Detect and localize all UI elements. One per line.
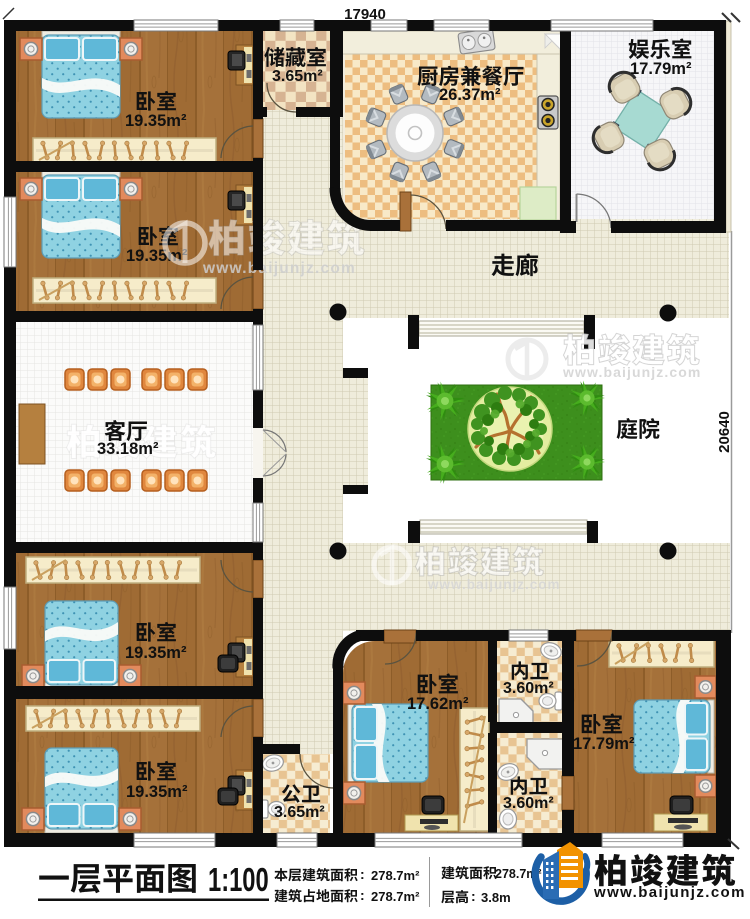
- svg-text:www.baijunjz.com: www.baijunjz.com: [562, 364, 701, 380]
- svg-text:19.35m²: 19.35m²: [125, 112, 187, 130]
- svg-text:17.79m²: 17.79m²: [573, 735, 635, 753]
- svg-text::: :: [471, 888, 476, 904]
- svg-text::: :: [360, 887, 365, 903]
- svg-text:19.35m²: 19.35m²: [126, 783, 188, 801]
- svg-text:3.65m²: 3.65m²: [272, 68, 323, 85]
- svg-text:3.8m: 3.8m: [481, 890, 511, 905]
- svg-text:3.65m²: 3.65m²: [274, 804, 325, 821]
- svg-text:26.37m²: 26.37m²: [439, 86, 501, 104]
- svg-text:1:100: 1:100: [208, 862, 269, 899]
- svg-text:www.baijunjz.com: www.baijunjz.com: [427, 577, 561, 592]
- svg-text:17.79m²: 17.79m²: [630, 60, 692, 78]
- svg-text:3.60m²: 3.60m²: [503, 680, 554, 697]
- svg-text::: :: [360, 866, 365, 882]
- svg-text:www.baijunjz.com: www.baijunjz.com: [593, 884, 746, 901]
- svg-text:19.35m²: 19.35m²: [125, 644, 187, 662]
- svg-text:278.7m²: 278.7m²: [371, 889, 420, 904]
- svg-text:www.baijunjz.com: www.baijunjz.com: [202, 260, 356, 277]
- svg-text:3.60m²: 3.60m²: [503, 795, 554, 812]
- svg-text:33.18m²: 33.18m²: [97, 440, 159, 458]
- svg-text:17940: 17940: [344, 6, 386, 23]
- svg-text:20640: 20640: [716, 411, 733, 453]
- svg-text:278.7m²: 278.7m²: [371, 868, 420, 883]
- svg-text:17.62m²: 17.62m²: [407, 695, 469, 713]
